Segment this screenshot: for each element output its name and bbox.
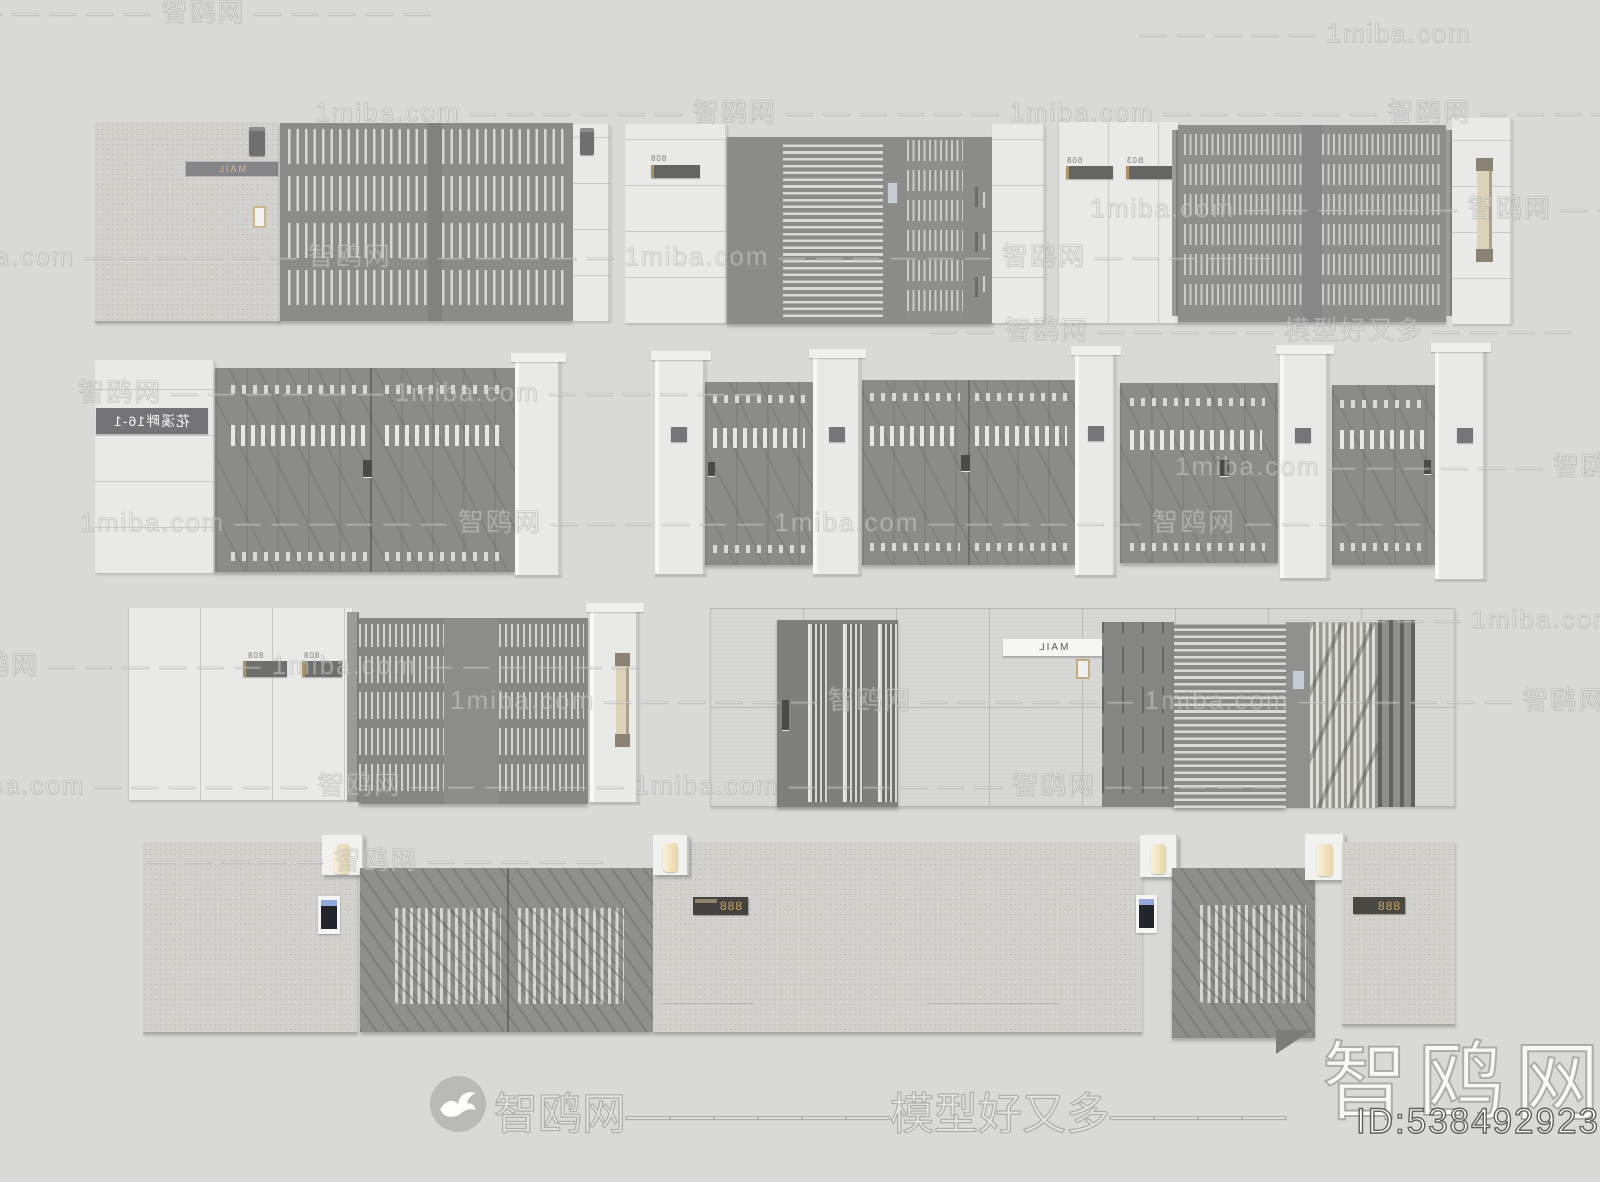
gate-pillar bbox=[515, 360, 562, 575]
gate-slot-band bbox=[713, 428, 805, 448]
gate-vent-row bbox=[975, 393, 1067, 401]
name-plaque bbox=[1126, 166, 1173, 179]
gate-model-9 bbox=[143, 835, 653, 1035]
decorative-panel bbox=[1477, 160, 1492, 260]
wall-seam bbox=[663, 1003, 753, 1004]
gate-texture bbox=[1120, 383, 1278, 563]
gate-stripe-panel bbox=[499, 624, 584, 800]
pillar-light-icon bbox=[1088, 426, 1104, 441]
gate-vent-row bbox=[385, 552, 505, 561]
gate-slat-panel bbox=[288, 127, 428, 317]
concrete-wall bbox=[653, 842, 1142, 1034]
pillar-light-icon bbox=[1457, 428, 1473, 443]
panel-wall bbox=[625, 124, 727, 323]
wall-lamp-bracket bbox=[1305, 834, 1345, 880]
gate-accent-bar bbox=[975, 162, 978, 297]
vented-gate bbox=[215, 368, 515, 572]
wall-lamp-icon bbox=[663, 843, 678, 872]
footer-watermark-text: 智鸥网——————模型好又多———— bbox=[494, 1078, 1286, 1142]
panel-wall bbox=[95, 360, 215, 573]
name-plaque bbox=[243, 661, 287, 677]
gate-solid-leaf bbox=[1102, 622, 1174, 807]
house-number-sign: 888 bbox=[693, 897, 748, 915]
gate-frame bbox=[1286, 622, 1310, 808]
gate-center-seam bbox=[968, 380, 970, 565]
dense-slat-gate bbox=[1178, 125, 1446, 322]
gate-slot-band bbox=[231, 425, 369, 446]
house-number-label: B03 bbox=[1126, 157, 1143, 165]
cluster-slat-gate bbox=[777, 620, 898, 807]
gate-vent-row bbox=[870, 393, 960, 401]
name-plaque bbox=[1066, 166, 1113, 179]
community-sign-text: 花溪畔16-1 bbox=[113, 411, 190, 431]
sign-small-text bbox=[695, 899, 717, 903]
gate-vent-row bbox=[1340, 400, 1427, 408]
gate-slat-panel bbox=[1322, 133, 1440, 314]
gate-lock-icon bbox=[1220, 460, 1229, 476]
mail-sign-text: MAIL bbox=[1037, 642, 1068, 653]
watermark-row: — — — — — 1miba.com bbox=[1140, 18, 1471, 49]
gate-pillar bbox=[1280, 352, 1330, 578]
house-number-text: 888 bbox=[720, 899, 743, 913]
decorative-panel bbox=[616, 655, 629, 745]
gate-vent-row bbox=[231, 552, 369, 561]
gate-slat-panel bbox=[518, 908, 624, 1004]
gate-slat-door bbox=[907, 140, 963, 320]
gate-lock-icon bbox=[1424, 460, 1431, 474]
panel-wall bbox=[1058, 122, 1178, 323]
model-id-text: ID:538492923 bbox=[1356, 1102, 1600, 1142]
gate-vent-row bbox=[385, 385, 505, 394]
mailbox-icon bbox=[1076, 659, 1090, 679]
keypad-icon bbox=[1292, 670, 1305, 690]
wall-lamp-bracket bbox=[322, 835, 364, 875]
wall-lamp-icon bbox=[249, 127, 265, 156]
gate-slat-door bbox=[1310, 622, 1378, 808]
gate-lock-icon bbox=[708, 462, 715, 476]
gate-model-10: 888 bbox=[653, 835, 1142, 1032]
vented-gate bbox=[705, 382, 813, 565]
gate-stripe-panel bbox=[359, 624, 444, 800]
pillar-light-icon bbox=[671, 427, 687, 442]
house-number-label: 808 bbox=[247, 652, 263, 660]
watermark-row: — — — — — 智鸥网 — — — — — bbox=[0, 0, 431, 29]
gate-louver-panel bbox=[783, 143, 883, 317]
gate-texture bbox=[1332, 385, 1435, 565]
wall-lamp-icon bbox=[580, 128, 594, 155]
intercom-screen bbox=[1139, 899, 1154, 928]
gate-lock-icon bbox=[961, 455, 970, 471]
site-logo-badge bbox=[430, 1076, 486, 1132]
gate-slat-panel bbox=[1184, 133, 1302, 314]
gate-pillar bbox=[590, 610, 640, 802]
gate-slat-cluster bbox=[808, 624, 828, 802]
name-plaque bbox=[302, 661, 342, 677]
gate-slot-band bbox=[975, 426, 1067, 446]
community-sign: 花溪畔16-1 bbox=[96, 408, 208, 434]
slatted-gate bbox=[280, 123, 573, 321]
house-number-label: 808 bbox=[650, 155, 666, 163]
keypad-icon bbox=[887, 182, 898, 204]
gate-texture bbox=[705, 382, 813, 565]
intercom-icon bbox=[318, 896, 340, 934]
wall-lamp-icon bbox=[1151, 844, 1166, 874]
gate-model-2: 808 bbox=[625, 123, 1045, 324]
gate-lock-icon bbox=[363, 460, 372, 477]
wall-lamp-icon bbox=[1317, 844, 1333, 876]
doorbell-icon bbox=[253, 206, 266, 228]
name-plaque bbox=[651, 165, 700, 178]
mail-sign: MAIL bbox=[1003, 639, 1103, 656]
gate-model-1: MAIL bbox=[95, 122, 610, 324]
diagonal-slat-gate bbox=[360, 868, 653, 1032]
house-number-sign: 888 bbox=[1353, 897, 1405, 914]
gate-slat-panel bbox=[442, 127, 566, 317]
gate-vent-row bbox=[231, 385, 369, 394]
gate-accent-bar bbox=[983, 172, 985, 292]
intercom-screen bbox=[321, 900, 337, 929]
gate-pillar bbox=[655, 358, 707, 574]
gate-hinge-post bbox=[347, 612, 359, 802]
gate-slat-cluster bbox=[878, 624, 897, 802]
intercom-icon bbox=[1136, 895, 1157, 933]
gate-model-8: MAIL bbox=[710, 608, 1455, 807]
gate-slot-band bbox=[1340, 430, 1427, 449]
gate-model-4: 花溪畔16-1 bbox=[95, 358, 562, 575]
gate-vent-row bbox=[713, 545, 805, 553]
gate-center-seam bbox=[507, 868, 509, 1032]
gate-slot-band bbox=[385, 425, 505, 446]
diagonal-slat-gate bbox=[1172, 868, 1315, 1038]
gate-model-5 bbox=[655, 353, 1117, 578]
gate-slat-panel bbox=[1200, 905, 1306, 1003]
gate-slat-cluster bbox=[843, 624, 863, 802]
pillar-light-icon bbox=[1295, 428, 1311, 443]
gate-pillar bbox=[1075, 353, 1117, 575]
gate-center-seam bbox=[1302, 125, 1322, 322]
gate-center-seam bbox=[428, 123, 442, 321]
model-preview-canvas: MAIL 808 608 B03 bbox=[0, 0, 1600, 1182]
gate-vent-row bbox=[1130, 398, 1265, 406]
gate-pillar bbox=[813, 356, 862, 574]
vented-gate bbox=[1332, 385, 1435, 565]
gate-vent-row bbox=[1130, 543, 1265, 551]
gate-vent-row bbox=[975, 543, 1067, 551]
gate-model-3: 608 B03 bbox=[1058, 118, 1512, 324]
gate-bar-panel bbox=[1378, 620, 1415, 807]
striped-double-gate bbox=[359, 618, 588, 804]
house-number-label: 808 bbox=[303, 652, 319, 660]
gate-slot-band bbox=[1130, 430, 1262, 450]
house-number-label: 608 bbox=[1066, 157, 1082, 165]
gate-model-6 bbox=[1120, 350, 1487, 579]
gate-vent-row bbox=[713, 395, 805, 403]
wall-lamp-icon bbox=[334, 844, 350, 874]
gate-bottom-corner bbox=[1276, 1030, 1312, 1054]
wall-seam bbox=[928, 1003, 1058, 1004]
gate-slat-panel bbox=[395, 908, 501, 1004]
vented-gate bbox=[1120, 383, 1278, 563]
wall-lamp-bracket bbox=[653, 835, 689, 875]
house-number-text: 888 bbox=[1377, 899, 1400, 913]
gate-vent-row bbox=[870, 543, 960, 551]
mail-sign-plate: MAIL bbox=[185, 161, 279, 177]
gate-center-seam bbox=[444, 618, 499, 804]
gate-pillar bbox=[1435, 350, 1487, 579]
panel-wall bbox=[992, 124, 1045, 323]
concrete-wall: 888 bbox=[1342, 842, 1455, 1026]
gate-slot-band bbox=[870, 426, 960, 446]
panel-wall bbox=[128, 608, 352, 800]
gate-vent-row bbox=[1340, 543, 1427, 551]
mail-sign-text: MAIL bbox=[217, 164, 246, 174]
louver-gate bbox=[727, 137, 993, 324]
pillar-light-icon bbox=[829, 427, 845, 442]
gate-lock-icon bbox=[782, 700, 789, 730]
gate-model-7: 808 808 bbox=[128, 608, 640, 802]
vented-double-gate bbox=[862, 380, 1075, 565]
louver-gate-leaf bbox=[1174, 624, 1286, 808]
seagull-logo-icon bbox=[436, 1082, 480, 1126]
